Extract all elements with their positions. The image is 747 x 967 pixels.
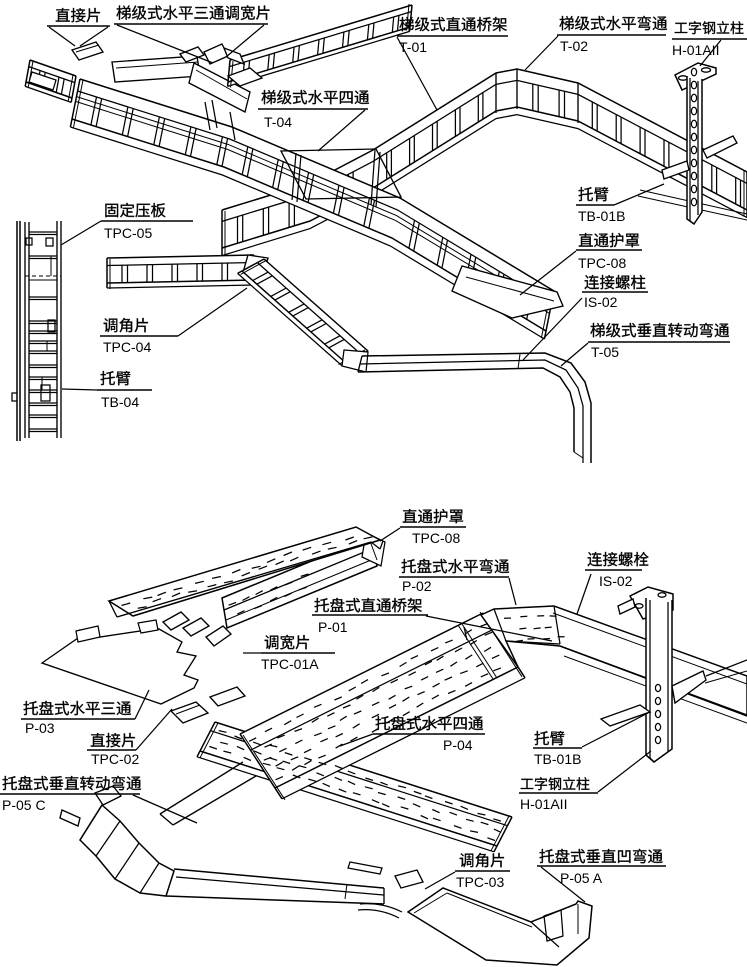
svg-text:TPC-02: TPC-02 [91, 751, 139, 767]
svg-text:P-04: P-04 [443, 737, 473, 753]
svg-text:T-02: T-02 [560, 38, 588, 54]
svg-text:TPC-08: TPC-08 [412, 530, 460, 546]
svg-text:P-03: P-03 [25, 720, 55, 736]
svg-text:TPC-03: TPC-03 [456, 874, 504, 890]
svg-text:T-01: T-01 [399, 39, 427, 55]
svg-text:TPC-08: TPC-08 [578, 255, 626, 271]
svg-text:TB-01B: TB-01B [578, 208, 625, 224]
svg-text:P-05 A: P-05 A [560, 870, 603, 886]
svg-text:TPC-01A: TPC-01A [261, 656, 319, 672]
svg-text:IS-02: IS-02 [599, 573, 633, 589]
svg-text:H-01AII: H-01AII [520, 796, 567, 812]
svg-text:TB-04: TB-04 [101, 394, 139, 410]
svg-text:P-05 C: P-05 C [2, 797, 46, 813]
svg-text:T-05: T-05 [591, 344, 619, 360]
svg-text:TPC-04: TPC-04 [103, 339, 151, 355]
svg-text:T-04: T-04 [264, 114, 292, 130]
svg-text:IS-02: IS-02 [584, 294, 618, 310]
svg-text:P-01: P-01 [318, 619, 348, 635]
svg-text:TPC-05: TPC-05 [104, 225, 152, 241]
svg-text:TB-01B: TB-01B [534, 751, 581, 767]
svg-text:P-02: P-02 [402, 578, 432, 594]
